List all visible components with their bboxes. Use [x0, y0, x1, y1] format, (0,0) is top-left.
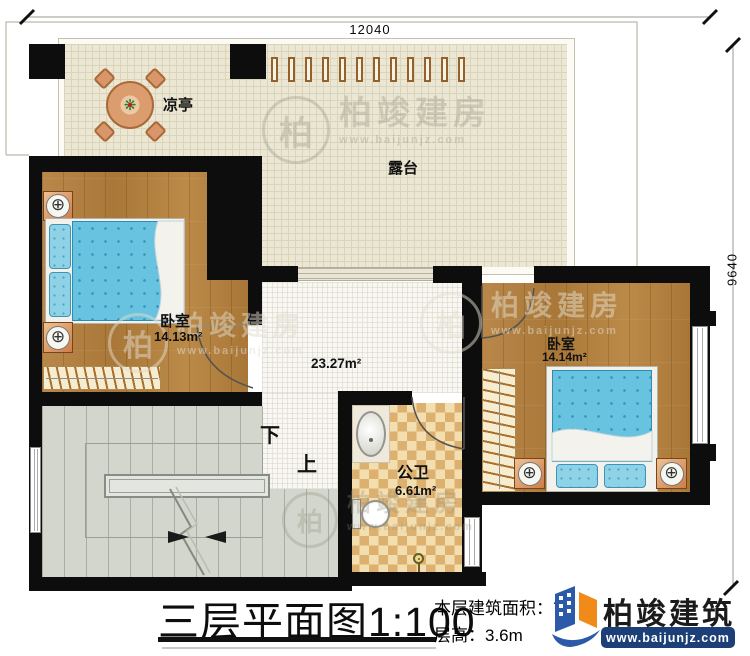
railing-slat — [305, 57, 312, 82]
pavilion-table: ❋ — [106, 81, 154, 129]
dimension-tick — [726, 38, 740, 52]
pavilion-chair — [144, 67, 167, 90]
dimension-tick — [703, 10, 717, 24]
nightstand: ⊕ — [656, 458, 687, 489]
area-bedroom-right: 14.14m² — [542, 351, 587, 364]
lamp-icon: ⊕ — [46, 326, 70, 350]
plant-icon: ❋ — [124, 98, 137, 113]
wall — [262, 266, 298, 282]
terrace-column — [29, 44, 65, 79]
stairs-up-label: 上 — [297, 455, 317, 476]
pavilion-chair — [93, 120, 116, 143]
railing-slat — [288, 57, 295, 82]
railing-slat — [424, 57, 431, 82]
hall-floor — [262, 282, 482, 393]
railing-slat — [458, 57, 465, 82]
area-hall: 23.27m² — [311, 357, 361, 371]
wall — [29, 392, 262, 406]
window — [464, 517, 480, 567]
area-bedroom-left: 14.13m² — [154, 330, 202, 344]
label-bathroom: 公卫 — [397, 466, 429, 483]
wall — [700, 311, 716, 326]
label-bedroom-left: 卧室 — [160, 314, 190, 330]
railing-slat — [390, 57, 397, 82]
wall — [248, 276, 262, 325]
lamp-icon: ⊕ — [660, 462, 684, 486]
toilet-tank — [352, 499, 361, 529]
brand-url: www.baijunjz.com — [601, 627, 735, 648]
wall — [338, 572, 486, 586]
pillow — [604, 464, 646, 488]
pillow — [49, 272, 71, 317]
sink — [356, 411, 386, 457]
wall — [700, 444, 716, 461]
terrace-door-sill — [298, 267, 433, 281]
wall — [534, 266, 710, 283]
title-underline-thin — [162, 647, 436, 649]
label-pavilion: 凉亭 — [163, 98, 193, 114]
staircase-area-lower — [262, 489, 338, 577]
terrace-railing — [271, 57, 465, 82]
wall — [338, 391, 352, 586]
sink-drain-dot — [369, 438, 373, 442]
toilet — [361, 500, 390, 528]
railing-slat — [441, 57, 448, 82]
terrace-column — [230, 44, 266, 79]
label-terrace: 露台 — [388, 161, 418, 177]
dimension-top: 12040 — [340, 22, 400, 37]
railing-slat — [322, 57, 329, 82]
pavilion-set: ❋ — [95, 70, 165, 140]
title-underline — [158, 637, 436, 642]
area-bathroom: 6.61m² — [395, 484, 436, 498]
dimension-right: 9640 — [725, 240, 740, 300]
lamp-icon: ⊕ — [518, 462, 542, 486]
nightstand: ⊕ — [43, 322, 73, 353]
floor-height-line: 层高：3.6m — [434, 621, 523, 646]
railing-slat — [407, 57, 414, 82]
wall-column — [207, 156, 262, 280]
window — [692, 326, 708, 444]
lamp-icon: ⊕ — [46, 194, 70, 218]
wardrobe — [43, 366, 161, 390]
window — [30, 447, 41, 533]
pavilion-chair — [144, 120, 167, 143]
wardrobe — [482, 368, 516, 492]
nightstand: ⊕ — [514, 458, 545, 489]
floor-plan-canvas: ❋ ⊕ ⊕ ⊕ ⊕ — [0, 0, 750, 656]
pillow — [556, 464, 598, 488]
bed-right — [552, 370, 652, 462]
nightstand: ⊕ — [43, 191, 73, 221]
dimension-tick — [20, 10, 34, 24]
stair-handrail — [104, 474, 270, 498]
pillow — [49, 224, 71, 269]
pavilion-chair — [93, 67, 116, 90]
stairs-down-label: 下 — [260, 426, 280, 447]
brand-logo-icon — [549, 584, 603, 650]
wall — [433, 266, 482, 283]
bed-left — [72, 221, 184, 321]
railing-slat — [339, 57, 346, 82]
railing-slat — [356, 57, 363, 82]
railing-slat — [271, 57, 278, 82]
wall — [462, 492, 710, 505]
railing-slat — [373, 57, 380, 82]
